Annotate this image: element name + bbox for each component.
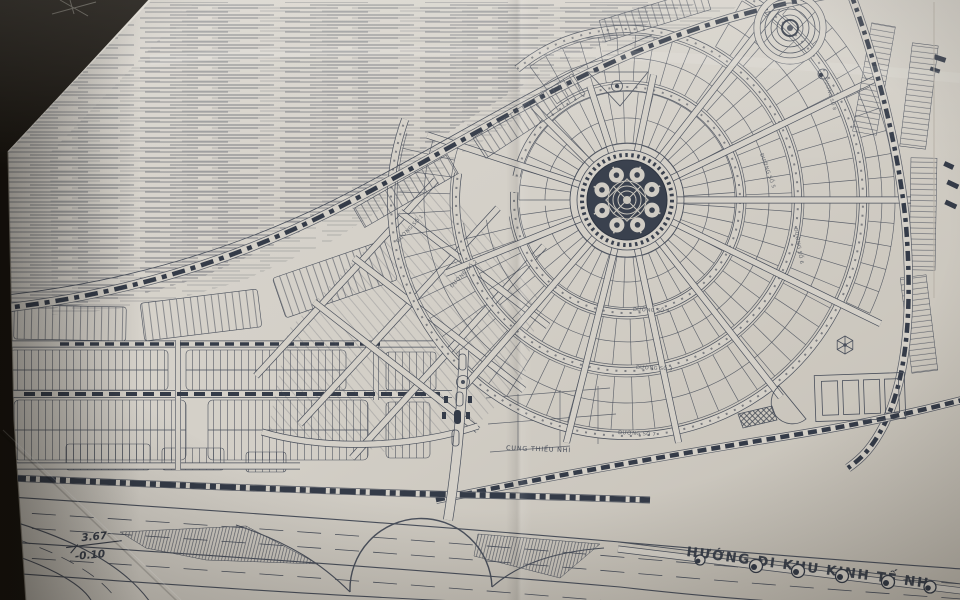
vignette [0,0,960,600]
plan-drawing: HƯỚNG ĐI KHU KINH TẾ NH [0,0,960,600]
photographed-plan: HƯỚNG ĐI KHU KINH TẾ NH [0,0,960,600]
